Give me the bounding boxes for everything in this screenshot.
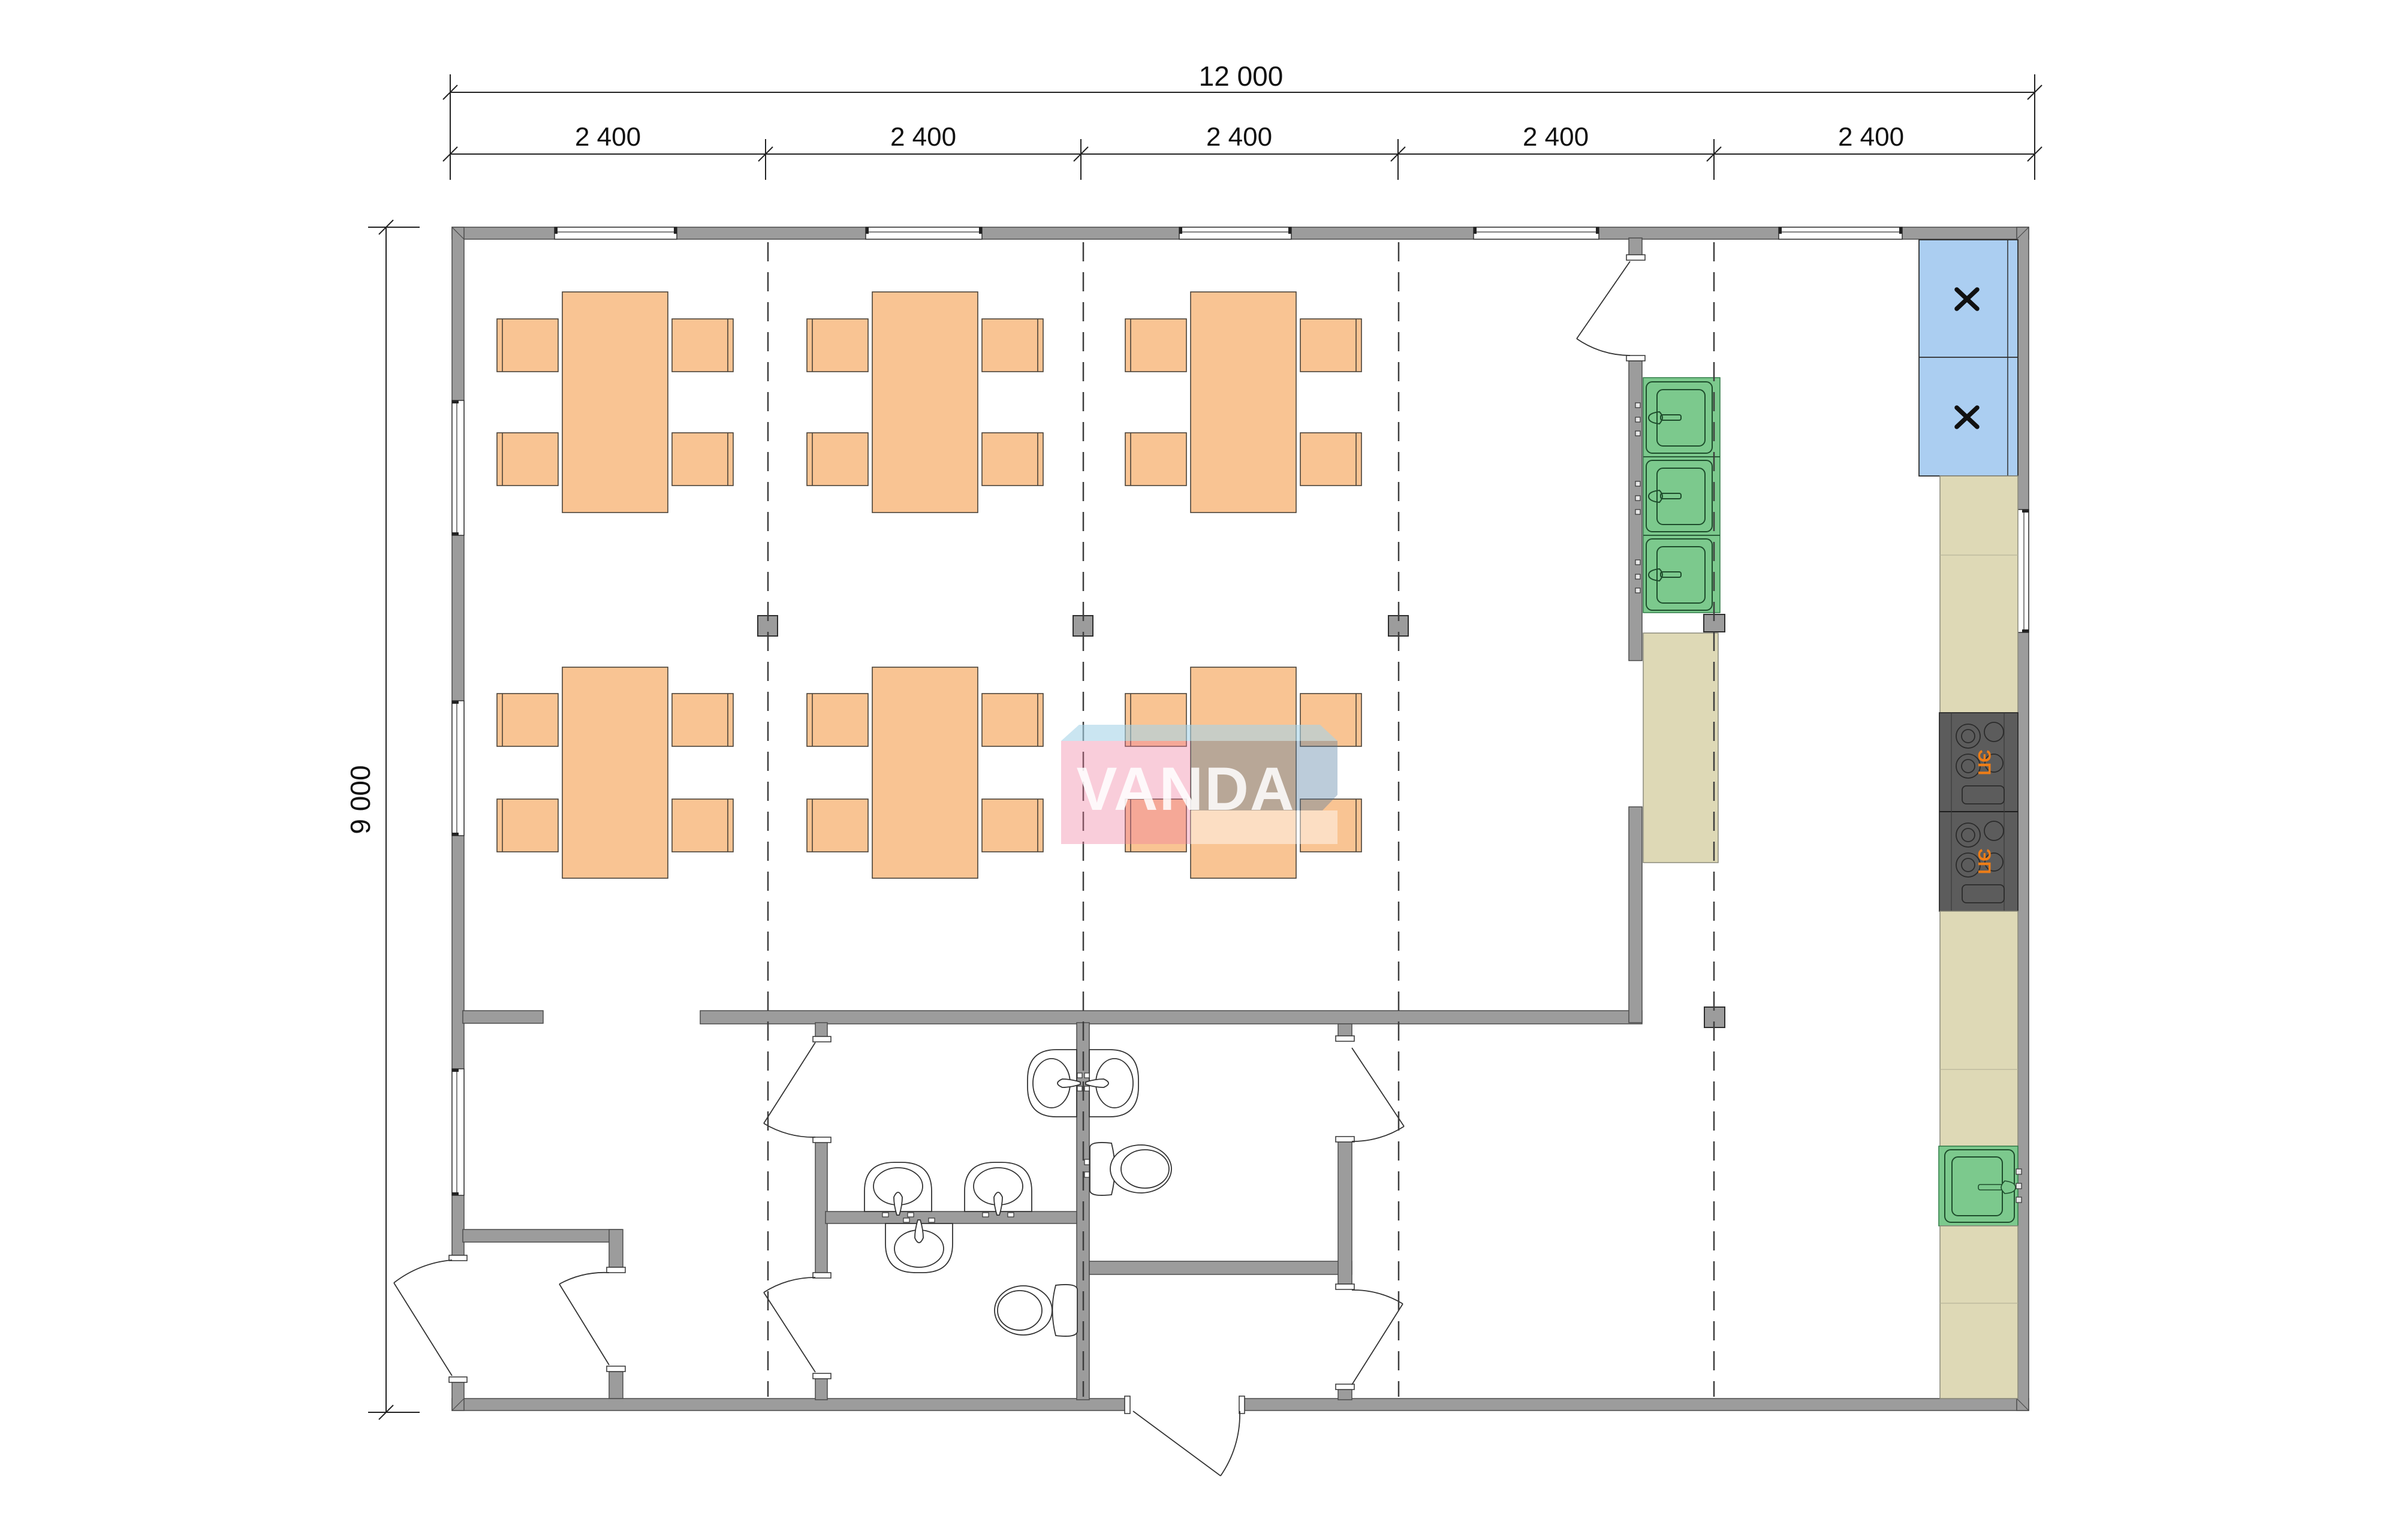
svg-text:VANDA: VANDA (1076, 755, 1295, 823)
svg-text:2 400: 2 400 (1838, 122, 1904, 152)
svg-text:ЭП: ЭП (1974, 849, 1994, 875)
svg-text:2 400: 2 400 (1523, 122, 1589, 152)
svg-text:ЭП: ЭП (1974, 750, 1994, 776)
svg-text:12 000: 12 000 (1199, 61, 1284, 92)
svg-text:2 400: 2 400 (1206, 122, 1272, 152)
svg-text:2 400: 2 400 (575, 122, 641, 152)
svg-text:2 400: 2 400 (890, 122, 956, 152)
svg-text:9 000: 9 000 (345, 765, 376, 834)
